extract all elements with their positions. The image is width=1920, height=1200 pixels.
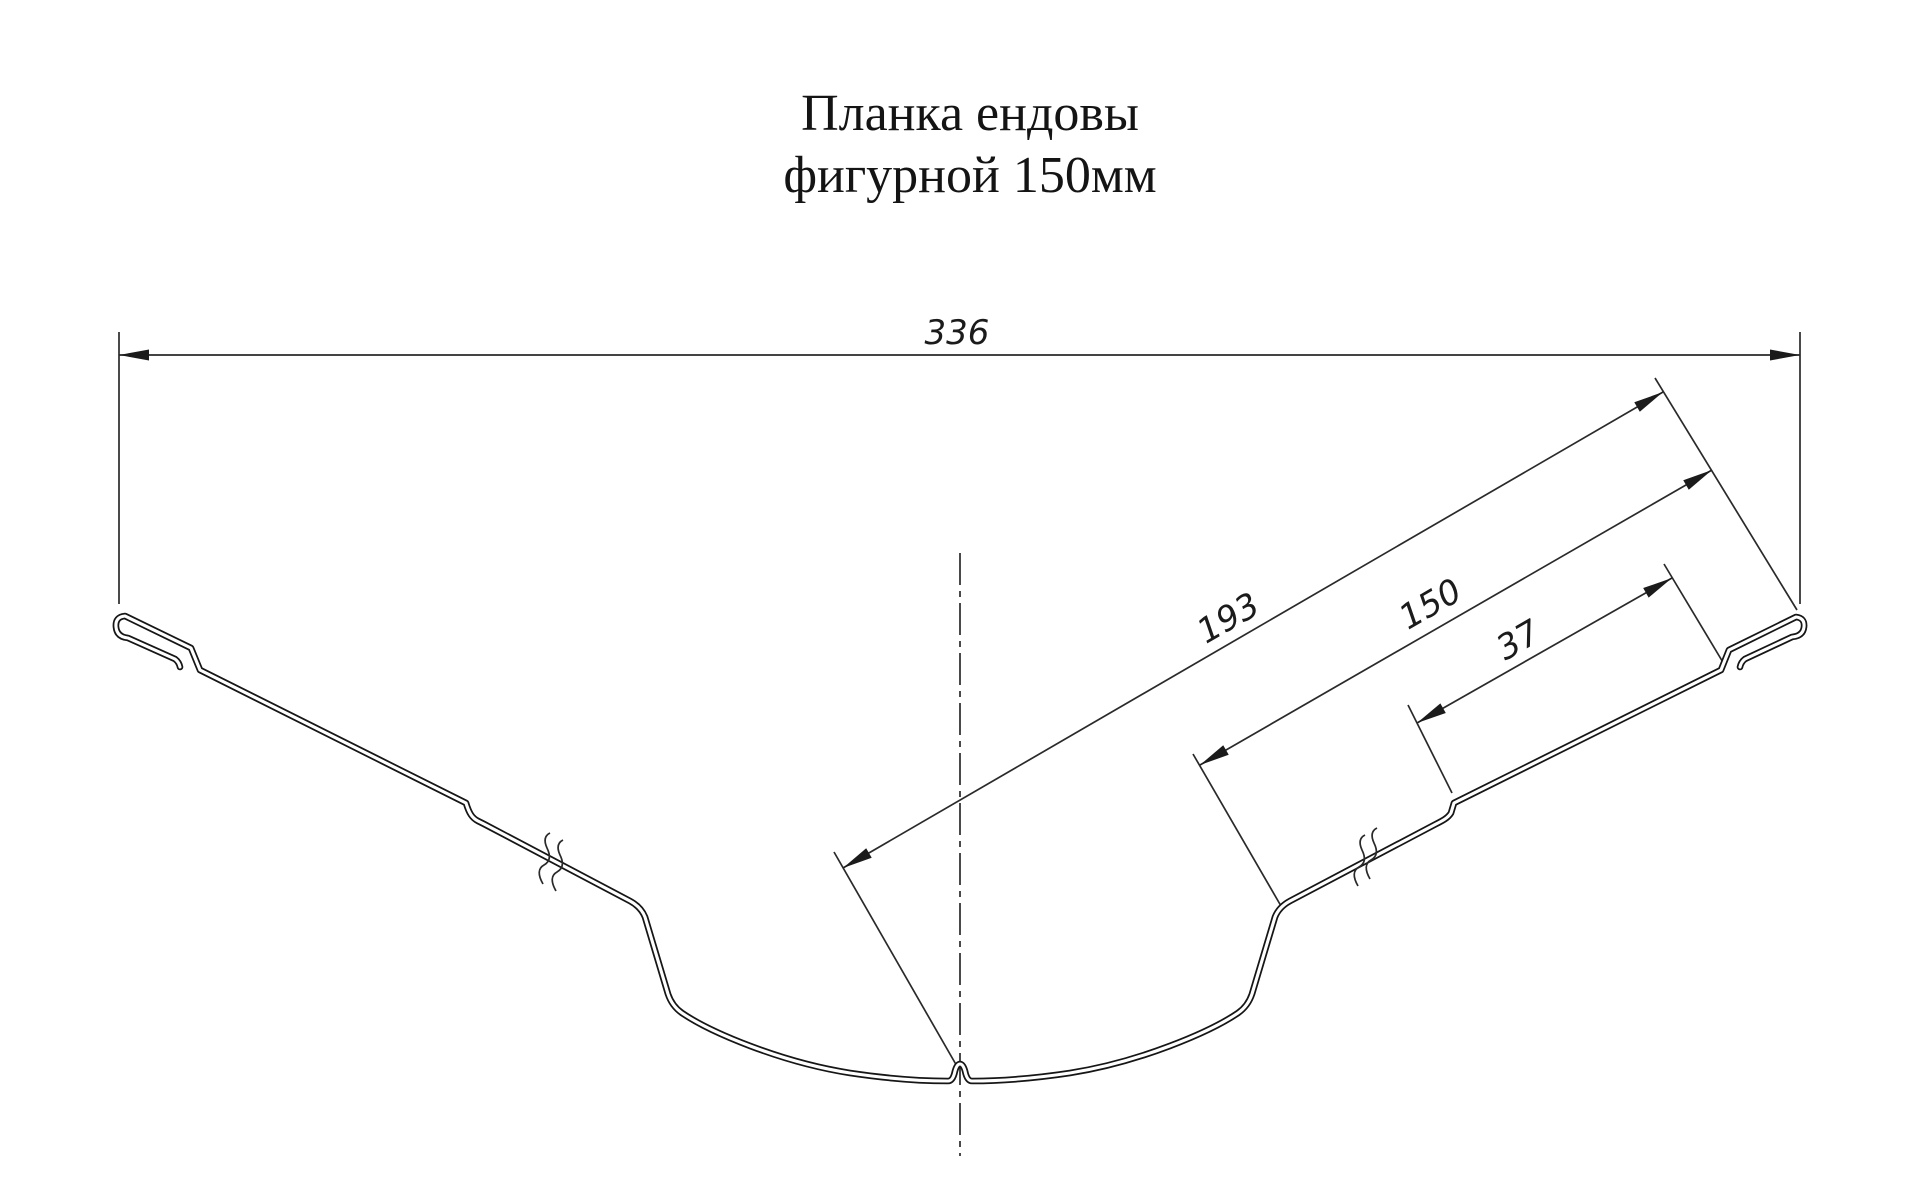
- dimension-label-37: 37: [1490, 612, 1548, 668]
- extension-line-sheet-edge-diagonal: [1655, 378, 1797, 610]
- break-mark-right-slope: [1354, 828, 1377, 886]
- dimension-line-193: [843, 392, 1663, 868]
- arrow-150-left: [1197, 745, 1228, 770]
- extension-line-valley-center: [834, 852, 958, 1068]
- dimension-line-150: [1200, 470, 1712, 765]
- arrow-193-left: [840, 848, 871, 873]
- break-marks: [539, 828, 1377, 891]
- dimension-label-150: 150: [1392, 571, 1468, 638]
- arrow-336-left: [119, 350, 149, 361]
- arrow-336-right: [1770, 350, 1800, 361]
- arrow-37-left: [1414, 703, 1446, 727]
- drawing-sheet: Планка ендовы фигурной 150мм: [0, 0, 1920, 1200]
- arrow-193-right: [1634, 387, 1665, 412]
- drawing-title-line2: фигурной 150мм: [783, 147, 1156, 204]
- extension-line-lower-bend: [1193, 754, 1281, 906]
- dimension-label-336: 336: [925, 313, 990, 353]
- arrow-37-right: [1643, 573, 1675, 597]
- extension-line-hem-step: [1664, 564, 1724, 664]
- valley-strip-drawing: Планка ендовы фигурной 150мм: [0, 0, 1920, 1200]
- dimension-label-193: 193: [1190, 585, 1266, 652]
- drawing-title-line1: Планка ендовы: [801, 85, 1139, 142]
